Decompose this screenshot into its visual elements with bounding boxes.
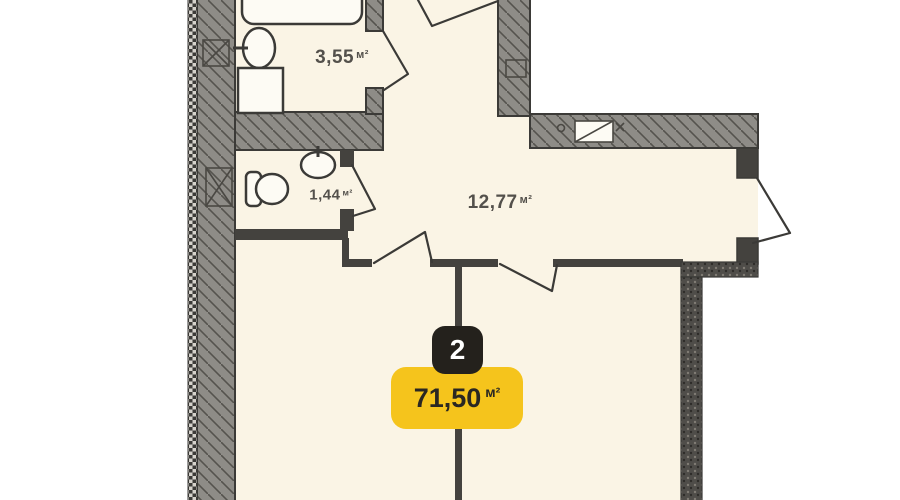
wc-area-value: 1,44	[309, 187, 340, 204]
wall-bottom-right-horizontal	[681, 262, 758, 277]
room-label-bathroom: 3,55м²	[315, 47, 369, 69]
room-label-hallway: 12,77м²	[468, 192, 533, 214]
wall-bathroom-right-lower	[366, 88, 383, 114]
wc-area-unit: м²	[342, 188, 352, 198]
unit-number-badge[interactable]: 2	[432, 326, 483, 374]
bathtub-fixture	[242, 0, 362, 24]
exterior-wall-left-insulation	[188, 0, 197, 500]
unit-number-value: 2	[450, 334, 466, 366]
hallway-area-value: 12,77	[468, 192, 518, 213]
room-label-wc: 1,44м²	[309, 187, 353, 204]
wall-bathroom-right-upper	[366, 0, 383, 31]
unit-total-area-unit: м²	[485, 384, 500, 400]
unit-total-area-badge[interactable]: 71,50м²	[391, 367, 523, 429]
floor-plan: 3,55м² 1,44м² 12,77м² 71,50м² 2	[0, 0, 900, 500]
wall-hallway-right	[498, 0, 530, 116]
exterior-wall-left	[197, 0, 235, 500]
entrance-jamb-top	[737, 148, 758, 178]
wall-hallway-bottom-a	[349, 259, 372, 267]
door-swing-entrance	[753, 178, 790, 243]
wall-hallway-bottom-b	[430, 259, 498, 267]
toilet-bowl-fixture	[256, 174, 288, 204]
washing-machine-fixture	[238, 68, 283, 113]
wall-wc-right-lower	[340, 209, 354, 231]
wall-top-right-wing	[530, 114, 758, 148]
bathroom-area-value: 3,55	[315, 47, 354, 68]
wall-bathroom-wc-separator	[235, 112, 383, 150]
wall-bottom-right-vertical	[681, 277, 702, 500]
unit-total-area-value: 71,50	[414, 383, 482, 414]
bathroom-area-unit: м²	[356, 49, 369, 61]
wall-hallway-bottom-c	[553, 259, 683, 267]
wall-hallway-jog	[342, 238, 349, 267]
hallway-area-unit: м²	[520, 194, 533, 206]
wall-wc-bottom	[235, 229, 348, 240]
